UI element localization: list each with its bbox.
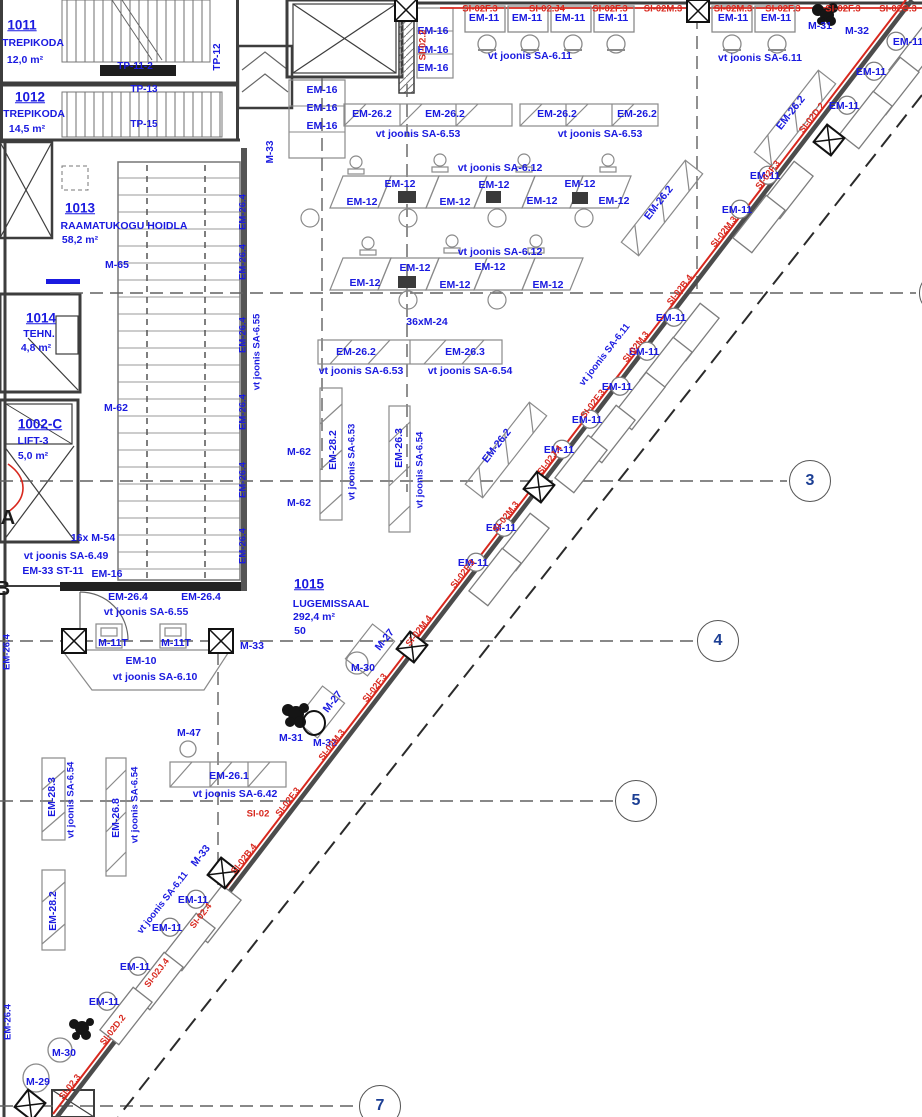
annotation-label: SI-02B.4: [230, 842, 259, 876]
annotation-label: 4,8 m²: [21, 343, 51, 354]
annotation-label: EM-26.4: [238, 462, 248, 498]
annotation-label: M-31: [808, 21, 832, 32]
annotation-label: SI-02F.3: [274, 786, 302, 818]
annotation-label: EM-16: [307, 103, 338, 114]
annotation-label: vt joonis SA-6.54: [130, 767, 140, 844]
annotation-label: EM-12: [475, 262, 506, 273]
annotation-label: vt joonis SA-6.54: [415, 432, 425, 509]
annotation-label: SI-02F.3: [449, 558, 477, 590]
annotation-label: EM-11: [152, 923, 182, 934]
annotation-label: vt joonis SA-6.54: [66, 762, 76, 839]
grid-bubble: 5: [615, 780, 657, 822]
annotation-label: M-27: [321, 689, 344, 714]
annotation-label: EM-26.1: [209, 771, 249, 782]
annotation-label: SI-02D.2: [99, 1013, 128, 1047]
annotation-label: 36xM-24: [406, 317, 447, 328]
annotation-label: vt joonis SA-6.49: [24, 551, 109, 562]
annotation-label: EM-26.2: [481, 427, 514, 465]
annotation-label: EM-12: [347, 197, 378, 208]
annotation-label: EM-11: [761, 13, 791, 24]
annotation-label: 12,0 m²: [7, 55, 43, 66]
annotation-label: TREPIKODA: [2, 38, 64, 49]
annotation-label: M-33: [266, 141, 276, 164]
annotation-label: SI-02.2: [418, 30, 428, 61]
annotation-label: EM-26.4: [238, 317, 248, 353]
annotation-label: EM-26.4: [238, 194, 248, 230]
grid-bubble: 4: [697, 620, 739, 662]
annotation-label: EM-11: [656, 313, 686, 324]
annotation-label: EM-12: [400, 263, 431, 274]
annotation-label: EM-11: [598, 13, 628, 24]
annotation-label: EM-26.2: [643, 184, 676, 222]
annotation-label: 14,5 m²: [9, 124, 45, 135]
annotation-label: vt joonis SA-6.53: [347, 424, 357, 501]
annotation-label: TP-13: [130, 85, 157, 95]
floor-plan-canvas: 1011TREPIKODA12,0 m²1012TREPIKODA14,5 m²…: [0, 0, 922, 1117]
annotation-label: vt joonis SA-6.12: [458, 247, 543, 258]
annotation-label: M-11T: [98, 638, 128, 649]
annotation-label: SI-02: [247, 809, 270, 819]
annotation-label: EM-11: [120, 962, 150, 973]
annotation-label: EM-11: [718, 13, 748, 24]
annotation-label: 1012: [15, 90, 45, 104]
annotation-label: 1015: [294, 577, 324, 591]
annotation-label: RAAMATUKOGU HOIDLA: [61, 221, 188, 232]
annotation-label: EM-16: [307, 85, 338, 96]
annotation-label: EM-11: [89, 997, 119, 1008]
annotation-label: M-30: [351, 663, 375, 674]
annotation-label: M-62: [104, 403, 128, 414]
annotation-label: SI-02B.4: [666, 273, 695, 307]
annotation-label: M-33: [189, 843, 212, 868]
annotation-label: EM-11: [856, 67, 886, 78]
annotation-label: vt joonis SA-6.11: [488, 51, 572, 62]
annotation-label: M-30: [52, 1048, 76, 1059]
annotation-label: 292,4 m²: [293, 612, 335, 623]
annotation-label: EM-12: [533, 280, 564, 291]
annotation-label: EM-12: [479, 180, 510, 191]
annotation-label: B: [0, 579, 10, 599]
annotation-label: vt joonis SA-6.54: [428, 366, 513, 377]
annotation-label: TP-15: [130, 120, 157, 130]
annotation-label: M-47: [177, 728, 201, 739]
annotation-label: TREPIKODA: [3, 109, 65, 120]
annotation-label: EM-12: [440, 197, 471, 208]
annotation-label: vt joonis SA-6.53: [376, 129, 461, 140]
annotation-label: EM-11: [555, 13, 585, 24]
annotation-label: M-11T: [161, 638, 191, 649]
annotation-label: TEHN.: [23, 329, 55, 340]
annotation-label: EM-12: [350, 278, 381, 289]
annotation-label: EM-26.2: [352, 109, 392, 120]
annotation-label: 50: [294, 626, 306, 637]
annotation-label: vt joonis SA-6.53: [558, 129, 643, 140]
annotation-label: EM-26.4: [238, 244, 248, 280]
annotation-label: 5,0 m²: [18, 451, 48, 462]
annotation-label: EM-26.3: [394, 428, 405, 468]
annotation-label: TP-11-2: [117, 62, 153, 72]
annotation-label: EM-16: [418, 63, 449, 74]
annotation-label: EM-26.4: [3, 1004, 13, 1040]
annotation-label: LUGEMISSAAL: [293, 599, 369, 610]
annotations-layer: 1011TREPIKODA12,0 m²1012TREPIKODA14,5 m²…: [0, 0, 922, 1117]
annotation-label: EM-11: [829, 101, 859, 112]
annotation-label: vt joonis SA-6.12: [458, 163, 543, 174]
annotation-label: SI-02.3: [58, 1073, 83, 1101]
annotation-label: EM-26.3: [445, 347, 485, 358]
annotation-label: 1013: [65, 201, 95, 215]
annotation-label: M-29: [26, 1077, 50, 1088]
annotation-label: vt joonis SA-6.10: [113, 672, 198, 683]
annotation-label: M-33: [240, 641, 264, 652]
annotation-label: TP-12: [213, 43, 223, 70]
annotation-label: vt joonis SA-6.55: [104, 607, 189, 618]
annotation-label: M-65: [105, 260, 129, 271]
annotation-label: EM-26.4: [2, 634, 12, 670]
annotation-label: vt joonis SA-6.42: [193, 789, 278, 800]
annotation-label: 1014: [26, 311, 56, 325]
annotation-label: EM-26.2: [336, 347, 376, 358]
annotation-label: EM-11: [469, 13, 499, 24]
grid-bubble: 3: [789, 460, 831, 502]
annotation-label: EM-26.8: [111, 798, 122, 838]
annotation-label: EM-12: [565, 179, 596, 190]
annotation-label: vt joonis SA-6.53: [319, 366, 404, 377]
annotation-label: EM-16: [92, 569, 123, 580]
annotation-label: EM-26.2: [537, 109, 577, 120]
annotation-label: EM-26.4: [238, 394, 248, 430]
annotation-label: 58,2 m²: [62, 235, 98, 246]
annotation-label: EM-12: [385, 179, 416, 190]
annotation-label: EM-12: [527, 196, 558, 207]
annotation-label: EM-26.4: [238, 528, 248, 564]
annotation-label: EM-11: [893, 37, 922, 48]
annotation-label: M-62: [287, 447, 311, 458]
annotation-label: A: [1, 508, 15, 528]
annotation-label: SI-02C.3: [879, 4, 917, 14]
annotation-label: LIFT-3: [18, 436, 49, 447]
annotation-label: EM-28.2: [328, 430, 339, 470]
annotation-label: EM-26.2: [425, 109, 465, 120]
annotation-label: EM-26.4: [108, 592, 148, 603]
annotation-label: EM-26.2: [617, 109, 657, 120]
annotation-label: EM-26.4: [181, 592, 221, 603]
annotation-label: EM-28.3: [47, 777, 58, 817]
annotation-label: EM-28.2: [48, 891, 59, 931]
annotation-label: M-32: [845, 26, 869, 37]
annotation-label: SI-02M.4: [404, 614, 434, 648]
annotation-label: EM-11: [602, 382, 632, 393]
annotation-label: vt joonis SA-6.11: [718, 53, 802, 64]
annotation-label: EM-11: [722, 205, 752, 216]
annotation-label: EM-10: [126, 656, 157, 667]
annotation-label: M-31: [279, 733, 303, 744]
annotation-label: SI-02.4: [189, 902, 214, 930]
annotation-label: 1011: [7, 18, 36, 32]
annotation-label: EM-33 ST-11: [22, 566, 83, 577]
annotation-label: EM-12: [440, 280, 471, 291]
annotation-label: vt joonis SA-6.55: [252, 314, 262, 391]
annotation-label: EM-12: [599, 196, 630, 207]
annotation-label: EM-11: [512, 13, 542, 24]
annotation-label: SI-02F.3: [825, 4, 860, 14]
annotation-label: EM-16: [307, 121, 338, 132]
annotation-label: SI-02F.3: [361, 672, 389, 704]
annotation-label: SI-02M.3: [644, 4, 683, 14]
annotation-label: M-27: [373, 627, 396, 652]
annotation-label: 1002-C: [18, 417, 62, 431]
annotation-label: 16x M-54: [71, 533, 115, 544]
annotation-label: SI-02M.3: [709, 215, 739, 249]
annotation-label: M-62: [287, 498, 311, 509]
